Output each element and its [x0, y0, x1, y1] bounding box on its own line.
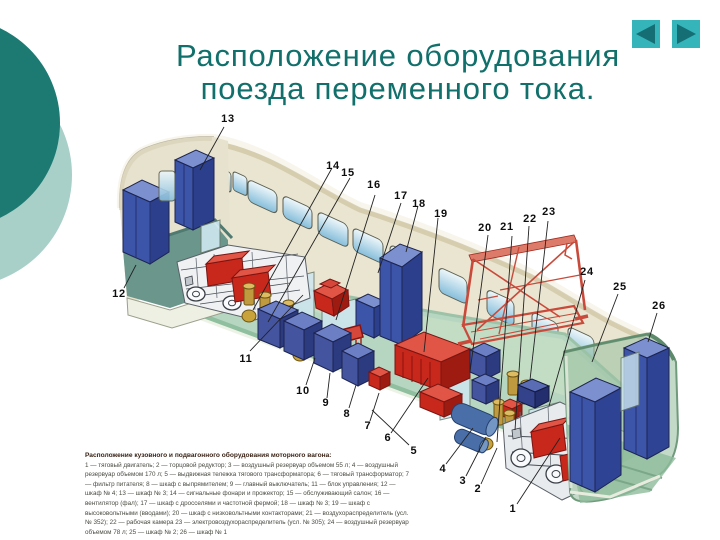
svg-text:20: 20: [478, 222, 492, 234]
svg-text:13: 13: [221, 113, 235, 125]
svg-text:25: 25: [613, 281, 627, 293]
svg-text:9: 9: [323, 397, 330, 409]
svg-text:5: 5: [411, 445, 418, 457]
svg-text:19: 19: [434, 208, 448, 220]
svg-text:17: 17: [394, 190, 408, 202]
svg-text:26: 26: [652, 300, 666, 312]
svg-text:8: 8: [344, 408, 351, 420]
svg-text:7: 7: [365, 420, 372, 432]
svg-text:21: 21: [500, 221, 514, 233]
svg-text:24: 24: [580, 266, 594, 278]
svg-text:10: 10: [296, 385, 310, 397]
svg-text:6: 6: [385, 432, 392, 444]
svg-text:23: 23: [542, 206, 556, 218]
svg-text:22: 22: [523, 213, 537, 225]
svg-text:1: 1: [510, 503, 517, 515]
svg-text:18: 18: [412, 198, 426, 210]
svg-text:3: 3: [460, 475, 467, 487]
svg-text:11: 11: [239, 353, 252, 365]
svg-text:4: 4: [440, 463, 447, 475]
svg-text:2: 2: [475, 483, 482, 495]
svg-text:14: 14: [326, 160, 340, 172]
svg-text:15: 15: [341, 167, 355, 179]
svg-text:16: 16: [367, 179, 381, 191]
svg-text:12: 12: [112, 288, 126, 300]
